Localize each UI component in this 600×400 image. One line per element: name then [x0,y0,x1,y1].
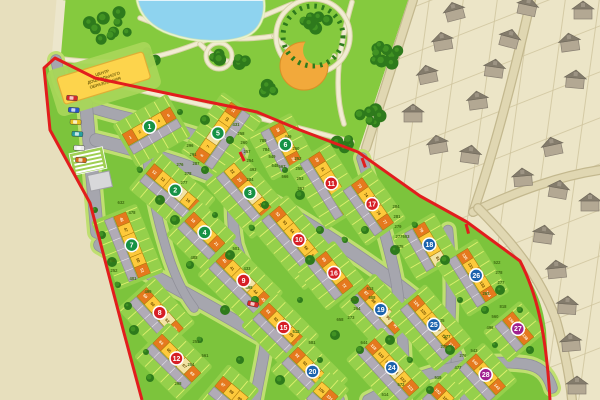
building-badge[interactable]: 15 [277,321,290,334]
tree [305,255,315,265]
plot-number: 275 [441,344,449,349]
park-tree-highlight [377,57,383,63]
building-badge[interactable]: 18 [423,238,436,251]
badge-number: 25 [430,322,438,329]
park-tree-highlight [234,54,240,60]
badge-number: 10 [295,237,303,244]
tree [261,201,269,209]
plot-number: 256 [109,258,117,263]
car-roof [78,158,82,162]
plot-number: 818 [500,304,508,309]
house-gable [424,67,429,72]
park-tree-highlight [366,109,370,113]
tree-highlight [172,217,177,222]
plot-number: 478 [129,210,137,215]
tree [220,305,230,315]
parked-car [74,145,85,151]
tree-highlight [297,192,302,197]
plot-number: 567 [279,164,287,169]
car-roof [77,146,81,150]
building-badge[interactable]: 9 [237,274,250,287]
plot-number: 519 [435,375,443,380]
building-badge[interactable]: 3 [243,186,256,199]
tree-highlight [493,343,496,346]
tree [236,356,244,364]
plot-number: 514 [382,392,390,397]
plot-number: 613 [367,286,375,291]
house-body [514,175,533,187]
house-gable [549,139,554,144]
tree [225,250,235,260]
plot-number: 296 [187,143,195,148]
tree-highlight [342,237,347,242]
badge-number: 4 [203,230,207,237]
plot-number: 658 [337,317,345,322]
plot-number: 257 [244,149,252,154]
house-body [568,384,586,394]
park-tree-highlight [394,48,398,52]
tree [426,386,434,394]
park-tree-highlight [264,82,268,86]
tree-highlight [357,347,362,352]
building-badge[interactable]: 4 [198,226,211,239]
tree-highlight [277,377,282,382]
park-tree-highlight [98,36,102,40]
building-badge[interactable]: 2 [169,184,182,197]
house-body [558,303,577,314]
tree [226,136,234,144]
building-badge[interactable]: 1 [143,120,156,133]
tree-highlight [393,248,396,251]
tree-highlight [263,203,266,206]
tree-highlight [317,227,322,232]
plot-number: 277 [444,334,452,339]
tree-highlight [308,258,311,261]
tree [495,285,505,295]
plot-number: 477 [455,365,463,370]
plot-number: 549 [269,154,277,159]
badge-number: 9 [242,278,246,285]
house-gable [469,147,474,152]
tree-highlight [362,227,367,232]
tree-highlight [498,288,501,291]
badge-number: 12 [173,356,181,363]
tree-highlight [482,307,487,312]
park-tree-highlight [242,58,246,62]
tree-highlight [213,213,216,216]
plot-number: 291 [190,152,198,157]
tree-highlight [249,225,254,230]
plot-number: 277 [181,180,189,185]
plot-number: 278 [185,171,193,176]
plot-number: 512 [293,329,301,334]
park-tree-highlight [116,9,120,13]
badge-number: 2 [173,188,177,195]
plot-number: 284 [393,204,401,209]
plot-number: 298 [175,381,183,386]
parked-car [72,131,83,137]
badge-number: 1 [148,124,152,131]
tree [317,357,323,363]
house-body [562,340,581,352]
car-roof [71,108,75,112]
building-badge[interactable]: 10 [292,233,305,246]
tree [457,297,463,303]
building-badge[interactable]: 11 [325,177,338,190]
park-tree-highlight [91,25,97,31]
badge-number: 11 [328,181,336,188]
park-tree-highlight [315,14,319,18]
building-badge[interactable]: 6 [279,138,292,151]
tree-highlight [228,253,231,256]
park-tree-highlight [215,55,221,61]
park-tree-highlight [373,49,379,55]
tree-highlight [517,307,522,312]
plot-number: 431 [233,122,241,127]
house-gable [557,182,562,187]
parked-car [68,107,79,113]
park-tree-highlight [377,42,381,46]
house-body [404,112,422,122]
plot-number: 603 [403,234,411,239]
tree-highlight [318,358,321,361]
plot-number: 278 [496,270,504,275]
plot-number: 566 [282,174,290,179]
park-tree-highlight [323,16,329,22]
plot-number: 255 [296,166,304,171]
park-tree-highlight [306,20,310,24]
house-body [581,201,599,211]
building-badge[interactable]: 5 [211,127,224,140]
badge-number: 28 [482,372,490,379]
tree-highlight [428,388,431,391]
tree-highlight [158,198,161,201]
badge-number: 7 [130,243,134,250]
plot-number: 260 [241,140,249,145]
park-tree-highlight [99,14,105,20]
tree-highlight [202,117,207,122]
plot-number: 608 [369,295,377,300]
plot-number: 284 [247,177,255,182]
tree [124,302,132,310]
badge-number: 16 [330,270,338,277]
house-gable [493,61,498,66]
park-tree-highlight [366,116,372,122]
tree-highlight [131,327,136,332]
plot-number: 488 [191,255,199,260]
building-badge[interactable]: 17 [366,198,379,211]
parked-car [66,95,77,101]
house-gable [542,227,547,232]
plot-number: 258 [238,131,246,136]
badge-number: 3 [248,190,252,197]
plot-number: 401 [130,276,138,281]
tree-highlight [228,138,231,141]
park-tree-highlight [344,135,350,141]
tree-highlight [187,262,192,267]
tree [385,335,395,345]
plot-number: 581 [309,340,317,345]
house-gable [574,72,578,76]
tree-highlight [458,298,461,301]
tree [177,109,183,115]
badge-number: 8 [158,310,162,317]
park-tree-highlight [107,31,113,37]
plot-number: 250 [293,146,301,151]
building-badge[interactable]: 16 [327,266,340,279]
parked-car [75,157,86,163]
building-badge[interactable]: 26 [470,269,483,282]
plot-number: 543 [471,348,479,353]
plot-number: 253 [193,339,201,344]
badge-number: 5 [216,131,220,138]
badge-number: 27 [514,326,522,333]
plot-number: 433 [244,266,252,271]
building-badge[interactable]: 24 [385,361,398,374]
plot-number: 496 [487,325,495,330]
car-roof [75,132,79,136]
tree [212,212,218,218]
park-tree-highlight [270,87,276,93]
plot-number: 644 [361,340,369,345]
tree-highlight [203,168,206,171]
tree-highlight [442,257,447,262]
tree [201,166,209,174]
car-roof [73,120,77,124]
park-tree-highlight [86,19,90,23]
plot-number: 501 [233,246,241,251]
house-gable [554,262,558,266]
plot-number: 263 [351,297,359,302]
house-gable [588,195,592,199]
building-badge[interactable]: 19 [374,303,387,316]
tree-highlight [238,358,241,361]
plot-number: 560 [492,314,500,319]
tree-highlight [412,222,417,227]
house-gable [565,298,569,302]
badge-number: 24 [388,365,396,372]
tree-highlight [115,282,120,287]
house-gable [411,106,415,110]
building-badge[interactable]: 25 [427,318,440,331]
tree [526,346,534,354]
tree-highlight [126,304,129,307]
plot-number: 632 [118,200,126,205]
building-badge[interactable]: 7 [125,239,138,252]
plot-number: 277 [498,280,506,285]
site-plan-map: 1234567891011363738391213141516172223242… [0,0,600,400]
plot-number: 493 [250,167,258,172]
house-gable [439,34,444,39]
plot-number: 561 [202,353,210,358]
tree-highlight [137,167,142,172]
badge-number: 17 [368,202,376,209]
car-roof [69,96,73,100]
house-gable [581,3,585,7]
building-badge[interactable]: 27 [511,322,524,335]
building-badge[interactable]: 12 [170,352,183,365]
house-gable [520,170,524,174]
park-tree-highlight [371,57,375,61]
tree-highlight [528,348,531,351]
plot-number: 275 [397,244,405,249]
tree [143,349,149,355]
tree-highlight [147,375,152,380]
masterplan-canvas: 1234567891011363738391213141516172223242… [0,0,600,400]
plot-number: 273 [348,315,356,320]
tree-highlight [332,332,337,337]
plot-number: 283 [483,291,491,296]
house-gable [575,378,579,382]
plot-number: 253 [297,176,305,181]
plot-number: 252 [295,156,303,161]
badge-number: 20 [309,369,317,376]
tree-highlight [407,357,412,362]
building-badge[interactable]: 28 [479,368,492,381]
plot-number: 279 [395,224,403,229]
plot-number: 254 [247,158,255,163]
badge-number: 19 [377,307,385,314]
house-gable [475,93,480,98]
house-gable [568,335,572,339]
badge-number: 15 [280,325,288,332]
building-badge[interactable]: 8 [153,306,166,319]
plot-number: 572 [398,382,406,387]
plot-number: 276 [460,353,468,358]
plot-number: 252 [111,268,119,273]
badge-number: 6 [283,142,287,149]
plot-number: 254 [188,362,196,367]
tree [297,297,303,303]
tree [492,342,498,348]
tree-highlight [388,338,391,341]
tree-highlight [298,298,301,301]
plot-number: 281 [394,214,402,219]
plot-number: 784 [263,147,271,152]
plot-number: 287 [193,161,201,166]
house-body [574,9,592,19]
tree-highlight [144,350,147,353]
tree [155,195,165,205]
tree-highlight [252,297,257,302]
park-tree-highlight [124,29,128,33]
plot-number: 257 [298,186,306,191]
park-tree-highlight [389,60,393,64]
house-gable [567,35,572,40]
entry-road [56,0,61,60]
badge-number: 26 [472,273,480,280]
plot-number: 499 [145,289,153,294]
plot-number: 789 [260,138,268,143]
park-tree-highlight [377,113,381,117]
plot-number: 276 [177,162,185,167]
house-gable [434,137,439,142]
parked-car [70,119,81,125]
building-badge[interactable]: 20 [306,365,319,378]
plot-number: 264 [354,306,362,311]
house-body [566,77,585,89]
plot-number: 522 [494,260,502,265]
badge-number: 18 [425,242,433,249]
park-tree-highlight [356,110,362,116]
tree-highlight [223,308,226,311]
tree-highlight [178,110,181,113]
